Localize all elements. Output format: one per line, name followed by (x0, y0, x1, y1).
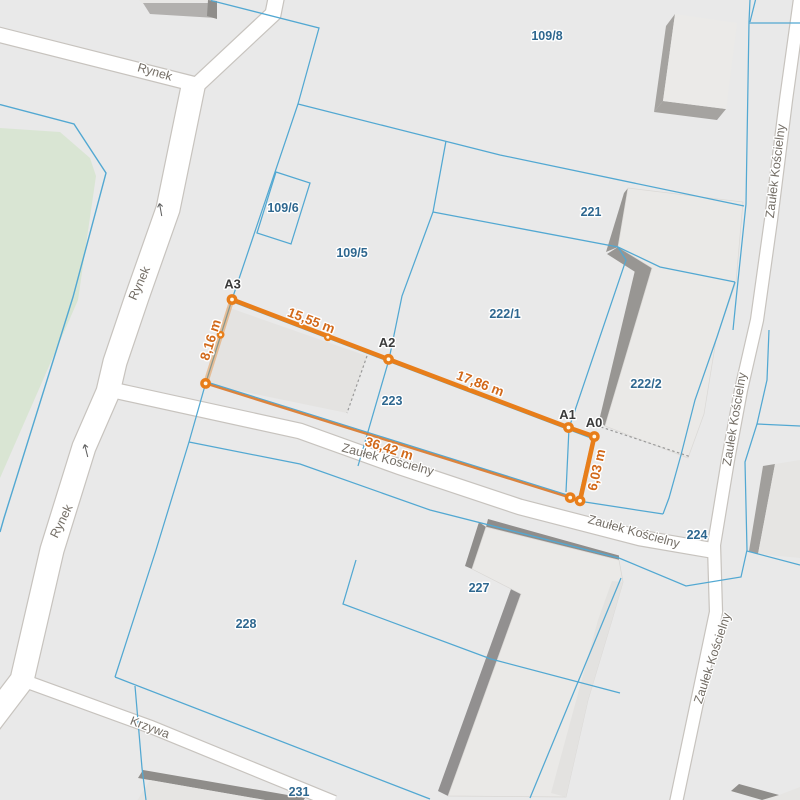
svg-text:A2: A2 (379, 335, 396, 350)
svg-text:109/8: 109/8 (531, 29, 562, 43)
svg-text:228: 228 (236, 617, 257, 631)
svg-text:222/2: 222/2 (630, 377, 661, 391)
svg-text:227: 227 (469, 581, 490, 595)
svg-text:224: 224 (687, 528, 708, 542)
svg-text:A1: A1 (559, 407, 576, 422)
svg-text:A3: A3 (224, 277, 241, 292)
svg-text:221: 221 (581, 205, 602, 219)
svg-text:109/6: 109/6 (267, 201, 298, 215)
svg-text:A0: A0 (586, 415, 603, 430)
svg-text:222/1: 222/1 (489, 307, 520, 321)
svg-text:231: 231 (289, 785, 310, 799)
svg-text:223: 223 (382, 394, 403, 408)
svg-text:109/5: 109/5 (336, 246, 367, 260)
